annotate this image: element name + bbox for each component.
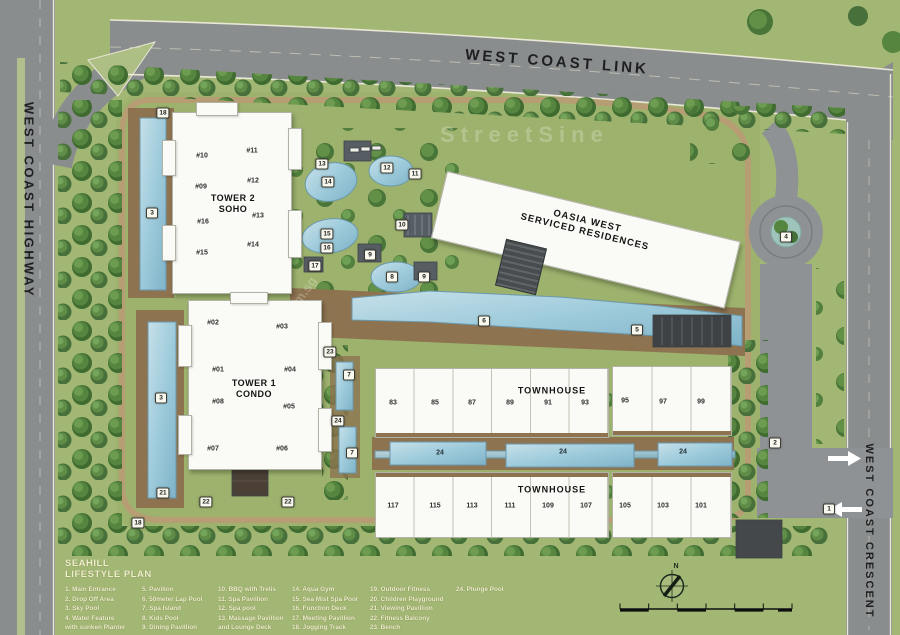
plunge-pool-label: 24 — [436, 450, 444, 457]
unit-label: #08 — [212, 399, 224, 406]
marker-1: 1 — [823, 504, 835, 515]
marker-2: 2 — [769, 438, 781, 449]
building-tower2-wing — [162, 225, 176, 261]
unit-label: #12 — [247, 178, 259, 185]
unit-label: #04 — [284, 367, 296, 374]
legend-column-5: 19. Outdoor Fitness20. Children Playgrou… — [370, 585, 444, 633]
unit-label: 83 — [389, 400, 397, 407]
legend-column-4: 14. Aqua Gym15. Sea Mist Spa Pool 16. Fu… — [292, 585, 358, 633]
unit-label: 91 — [544, 400, 552, 407]
compass-and-scale — [600, 556, 900, 631]
townhouse-north-block-a — [375, 368, 609, 438]
unit-label: 97 — [659, 399, 667, 406]
building-tower1-wing — [178, 325, 192, 367]
unit-label: 89 — [506, 400, 514, 407]
legend-column-3: 10. BBQ with Trelis11. Spa Pavillion 12.… — [218, 585, 284, 633]
base-map-art — [0, 0, 900, 635]
marker-6: 6 — [478, 316, 490, 327]
marker-24: 24 — [331, 416, 344, 427]
unit-label: 103 — [657, 503, 669, 510]
marker-18b: 18 — [131, 518, 144, 529]
unit-label: 109 — [542, 503, 554, 510]
label-tower2: TOWER 2SOHO — [211, 193, 255, 215]
unit-label: 107 — [580, 503, 592, 510]
marker-22: 22 — [199, 497, 212, 508]
marker-9: 9 — [364, 250, 376, 261]
marker-7: 7 — [343, 370, 355, 381]
scale-bar — [620, 604, 792, 612]
unit-label: 93 — [581, 400, 589, 407]
unit-label: 101 — [695, 503, 707, 510]
building-tower2-wing — [288, 210, 302, 258]
marker-14: 14 — [321, 177, 334, 188]
marker-8: 8 — [386, 272, 398, 283]
unit-label: 117 — [387, 503, 398, 510]
plunge-pool-label: 24 — [559, 449, 567, 456]
marker-10: 10 — [395, 220, 408, 231]
townhouse-south-block-a — [375, 472, 609, 538]
unit-label: #16 — [197, 219, 209, 226]
building-tower2-wing — [288, 128, 302, 170]
label-townhouse-north: TOWNHOUSE — [518, 386, 586, 397]
building-tower1-wing — [230, 292, 268, 304]
unit-label: #13 — [252, 213, 264, 220]
unit-label: 95 — [621, 398, 629, 405]
marker-16: 16 — [320, 243, 333, 254]
plunge-pool-label: 24 — [679, 449, 687, 456]
marker-13: 13 — [315, 159, 328, 170]
unit-label: 105 — [619, 503, 631, 510]
unit-label: #10 — [196, 153, 208, 160]
unit-label: 87 — [468, 400, 476, 407]
unit-label: 113 — [466, 503, 477, 510]
marker-9b: 9 — [418, 272, 430, 283]
marker-5: 5 — [631, 325, 643, 336]
label-tower1: TOWER 1CONDO — [232, 378, 276, 400]
label-townhouse-south: TOWNHOUSE — [518, 485, 586, 496]
marker-18: 18 — [156, 108, 169, 119]
site-plan: StreetSine srx.com.sg WEST COAST LINK WE… — [0, 0, 900, 635]
marker-23: 23 — [323, 347, 336, 358]
marker-11: 11 — [409, 169, 422, 180]
unit-label: 115 — [429, 503, 440, 510]
legend-column-2: 5. Pavilion6. 50meter Lap Pool 7. Spa Is… — [142, 585, 202, 633]
road-label-west-coast-highway: WEST COAST HIGHWAY — [22, 102, 37, 298]
marker-22b: 22 — [281, 497, 294, 508]
unit-label: #15 — [196, 250, 208, 257]
unit-label: #02 — [207, 320, 219, 327]
marker-3b: 3 — [155, 393, 167, 404]
marker-12: 12 — [380, 163, 393, 174]
legend-column-6: 24. Plunge Pool — [456, 585, 504, 595]
legend-title: SEAHILLLIFESTYLE PLAN — [65, 558, 152, 580]
marker-17: 17 — [308, 261, 321, 272]
unit-label: #06 — [276, 446, 288, 453]
marker-4: 4 — [780, 232, 792, 243]
legend-column-1: 1. Main Entrance2. Drop Off Area 3. Sky … — [65, 585, 125, 633]
unit-label: #07 — [207, 446, 219, 453]
unit-label: 111 — [505, 503, 516, 510]
watermark: StreetSine — [440, 122, 609, 148]
unit-label: #05 — [283, 404, 295, 411]
unit-label: #11 — [246, 148, 257, 155]
unit-label: #01 — [212, 367, 224, 374]
marker-7b: 7 — [346, 448, 358, 459]
townhouse-north-block-b — [612, 366, 732, 436]
building-tower1-wing — [178, 415, 192, 455]
marker-3: 3 — [146, 208, 158, 219]
unit-label: 85 — [431, 400, 439, 407]
building-tower2-wing — [196, 102, 238, 116]
compass-rose — [656, 570, 688, 602]
marker-15: 15 — [320, 229, 333, 240]
unit-label: #03 — [276, 324, 288, 331]
unit-label: 99 — [697, 399, 705, 406]
building-tower2-wing — [162, 140, 176, 176]
unit-label: #09 — [195, 184, 207, 191]
unit-label: #14 — [247, 242, 259, 249]
marker-21: 21 — [156, 488, 169, 499]
building-tower1-wing — [318, 408, 332, 452]
